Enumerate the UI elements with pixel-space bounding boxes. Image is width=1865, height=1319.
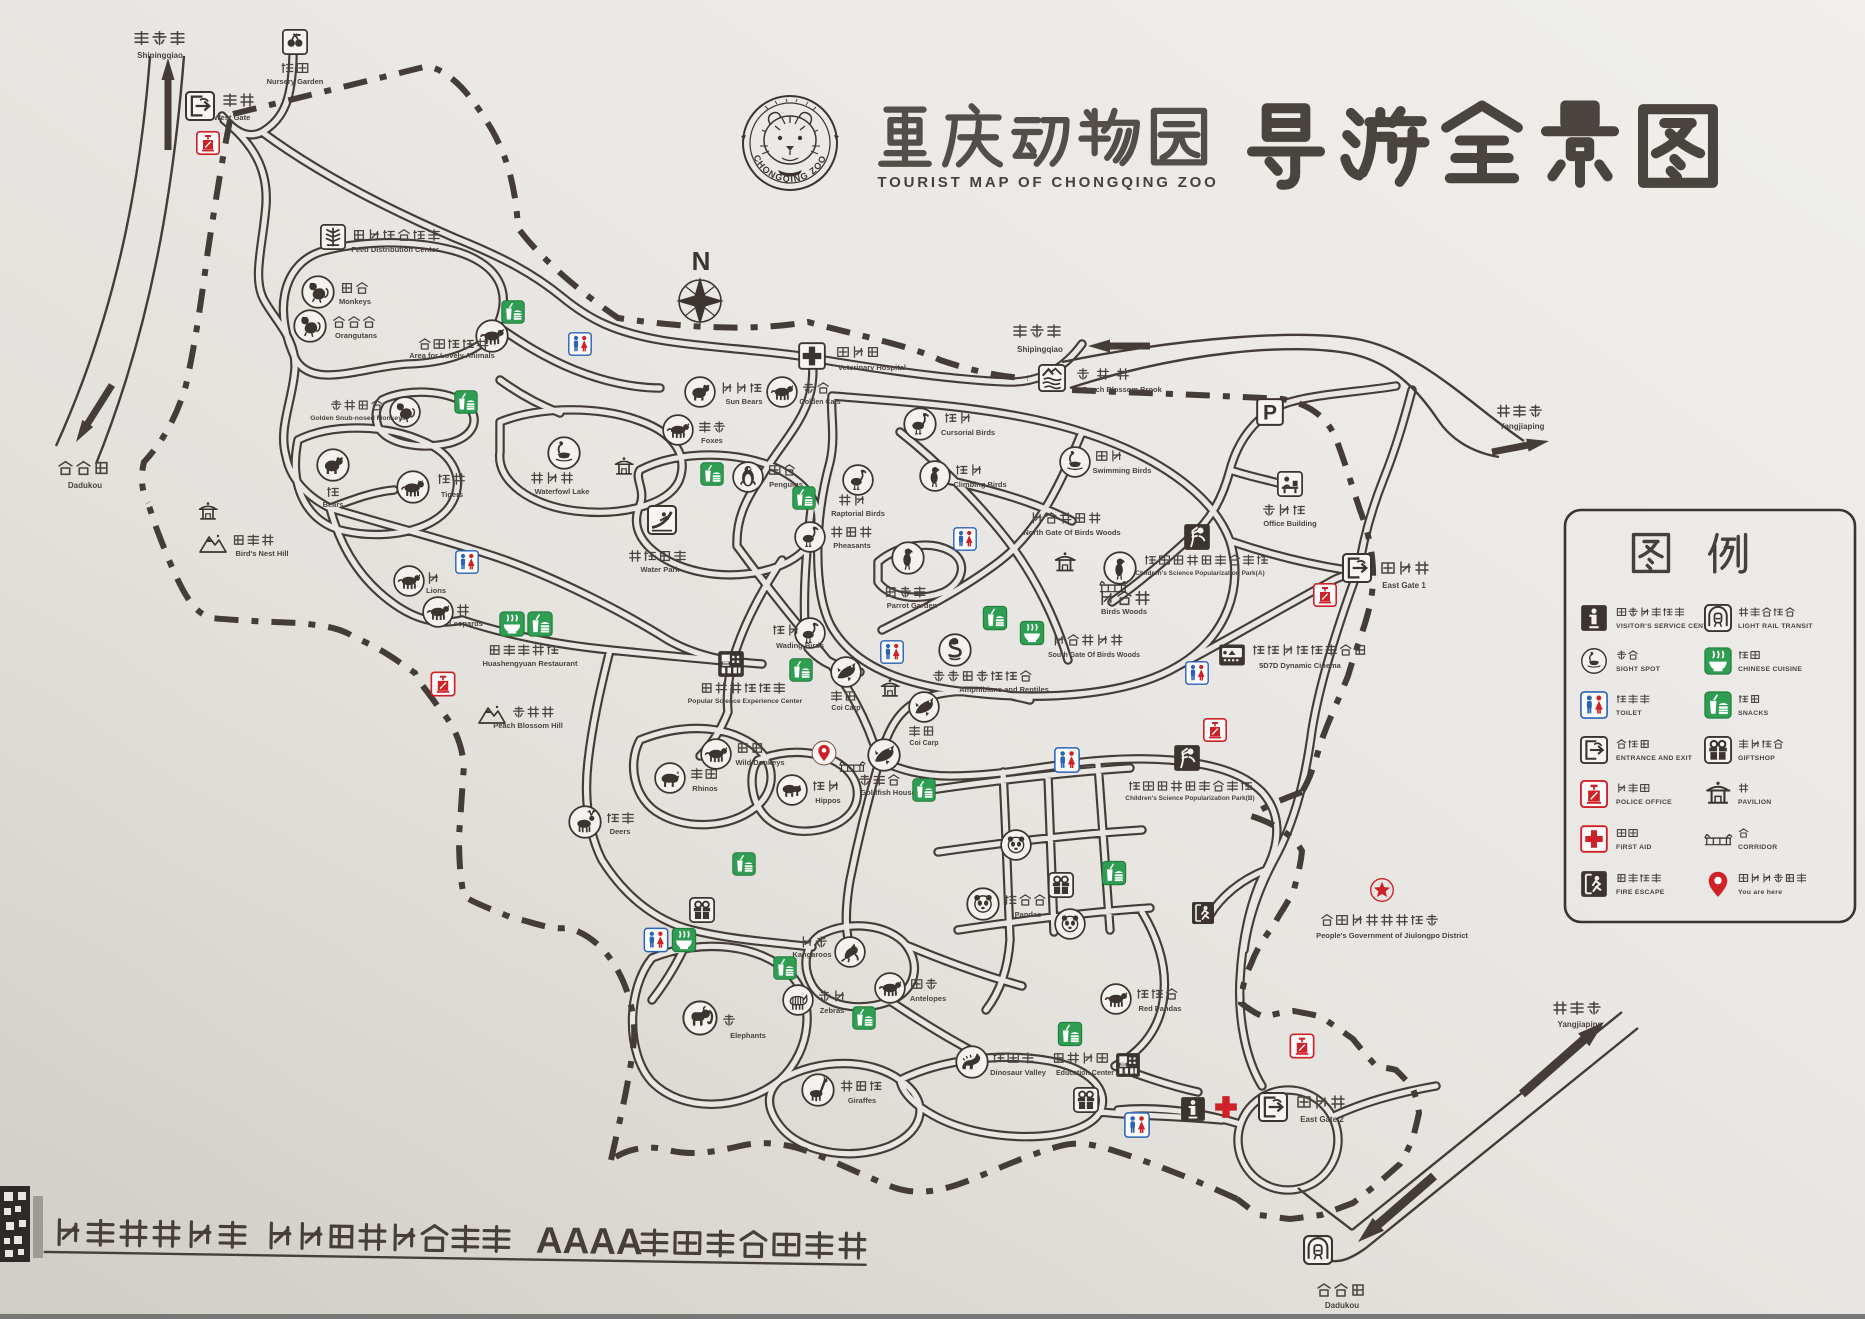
svg-text:N: N	[692, 246, 711, 276]
svg-text:Popular Science Experience Cen: Popular Science Experience Center	[688, 698, 803, 705]
svg-text:Dadukou: Dadukou	[68, 481, 102, 490]
svg-text:Lions: Lions	[426, 586, 446, 595]
svg-text:TOURIST MAP OF CHONGQING ZOO: TOURIST MAP OF CHONGQING ZOO	[877, 174, 1218, 191]
svg-text:Wading Birds: Wading Birds	[776, 641, 824, 650]
svg-text:Children's Science Popularizat: Children's Science Popularization Park(A…	[1135, 570, 1264, 577]
svg-text:PAVILION: PAVILION	[1738, 799, 1772, 806]
svg-text:Huashengyuan Restaurant: Huashengyuan Restaurant	[482, 659, 578, 668]
svg-text:Wild Donkeys: Wild Donkeys	[735, 758, 784, 767]
svg-text:Yangjiaping: Yangjiaping	[1500, 422, 1545, 431]
svg-text:Dinosaur Valley: Dinosaur Valley	[990, 1068, 1047, 1077]
svg-text:Coi Carp: Coi Carp	[831, 705, 860, 712]
svg-text:Goldfish House: Goldfish House	[860, 788, 915, 797]
svg-text:Foxes: Foxes	[701, 436, 723, 445]
svg-text:AAAA: AAAA	[536, 1220, 644, 1263]
svg-text:Giraffes: Giraffes	[848, 1096, 876, 1105]
svg-text:Cursorial Birds: Cursorial Birds	[941, 428, 995, 437]
svg-text:Waterfowl Lake: Waterfowl Lake	[535, 487, 590, 496]
svg-text:Shipingqiao: Shipingqiao	[1017, 345, 1063, 354]
svg-text:5D7D Dynamic Cinema: 5D7D Dynamic Cinema	[1259, 661, 1342, 670]
svg-text:Golden Cats: Golden Cats	[799, 399, 840, 406]
svg-text:Shipingqiao: Shipingqiao	[137, 51, 183, 60]
svg-text:SNACKS: SNACKS	[1738, 710, 1769, 717]
svg-text:Office Building: Office Building	[1263, 519, 1317, 528]
svg-text:Area for Lovely Animals: Area for Lovely Animals	[409, 351, 495, 360]
svg-text:Pandas: Pandas	[1015, 910, 1042, 919]
svg-text:Parrot Garden: Parrot Garden	[887, 601, 938, 610]
svg-text:North Gate Of Birds Woods: North Gate Of Birds Woods	[1023, 528, 1120, 537]
svg-text:Feed Distribution Center: Feed Distribution Center	[351, 245, 439, 254]
svg-text:Water Park: Water Park	[641, 565, 681, 574]
svg-text:Bears: Bears	[323, 500, 344, 509]
svg-text:Veterinary Hospital: Veterinary Hospital	[838, 363, 906, 372]
svg-text:West Gate: West Gate	[214, 113, 251, 122]
svg-text:LIGHT RAIL TRANSIT: LIGHT RAIL TRANSIT	[1738, 623, 1813, 630]
svg-text:Peach Blossom Brook: Peach Blossom Brook	[1082, 385, 1162, 394]
svg-text:Pheasants: Pheasants	[833, 541, 871, 550]
svg-text:CORRIDOR: CORRIDOR	[1738, 844, 1777, 851]
svg-text:Education Center: Education Center	[1056, 1070, 1114, 1077]
svg-text:SIGHT SPOT: SIGHT SPOT	[1616, 666, 1661, 673]
svg-text:Bird's Nest Hill: Bird's Nest Hill	[235, 549, 288, 558]
svg-text:Climbing Birds: Climbing Birds	[953, 480, 1006, 489]
svg-text:Amphibians and Reptiles: Amphibians and Reptiles	[959, 685, 1049, 694]
svg-text:Peach Blossom Hill: Peach Blossom Hill	[493, 721, 563, 730]
svg-text:Leopards: Leopards	[449, 619, 483, 628]
svg-text:FIRE ESCAPE: FIRE ESCAPE	[1616, 889, 1665, 896]
svg-text:CHINESE CUISINE: CHINESE CUISINE	[1738, 666, 1802, 673]
svg-text:East Gate 2: East Gate 2	[1300, 1115, 1344, 1124]
svg-text:Rhinos: Rhinos	[692, 784, 717, 793]
svg-text:Raptorial Birds: Raptorial Birds	[831, 509, 885, 518]
svg-text:ENTRANCE AND EXIT: ENTRANCE AND EXIT	[1616, 755, 1693, 762]
svg-text:Children's Science Popularizat: Children's Science Popularization Park(B…	[1125, 795, 1254, 802]
svg-text:Red Pandas: Red Pandas	[1139, 1004, 1182, 1013]
svg-text:You are here: You are here	[1738, 889, 1782, 896]
svg-text:Yangjiaping: Yangjiaping	[1558, 1020, 1603, 1029]
svg-text:Monkeys: Monkeys	[339, 297, 371, 306]
svg-text:Coi Carp: Coi Carp	[909, 740, 938, 747]
svg-text:East Gate 1: East Gate 1	[1382, 581, 1426, 590]
svg-text:Orangutans: Orangutans	[335, 331, 377, 340]
svg-text:Birds Woods: Birds Woods	[1101, 607, 1147, 616]
svg-text:Swimming Birds: Swimming Birds	[1093, 466, 1152, 475]
svg-text:FIRST AID: FIRST AID	[1616, 844, 1652, 851]
svg-text:GIFTSHOP: GIFTSHOP	[1738, 755, 1775, 762]
svg-text:Sun Bears: Sun Bears	[725, 397, 762, 406]
svg-text:Zebras: Zebras	[820, 1006, 845, 1015]
svg-text:Golden Snub-nosed Monkeys: Golden Snub-nosed Monkeys	[310, 415, 406, 422]
svg-text:Antelopes: Antelopes	[910, 994, 946, 1003]
svg-text:Dadukou: Dadukou	[1325, 1301, 1359, 1310]
svg-text:Deers: Deers	[610, 827, 631, 836]
svg-text:Elephants: Elephants	[730, 1031, 766, 1040]
svg-text:Tigers: Tigers	[441, 490, 463, 499]
svg-text:VISITOR'S SERVICE CENTER: VISITOR'S SERVICE CENTER	[1616, 623, 1718, 630]
svg-text:South Gate Of Birds Woods: South Gate Of Birds Woods	[1048, 652, 1140, 659]
svg-text:Nursery Garden: Nursery Garden	[267, 77, 324, 86]
svg-text:POLICE OFFICE: POLICE OFFICE	[1616, 799, 1672, 806]
svg-text:People's Government of Jiulong: People's Government of Jiulongpo Distric…	[1316, 931, 1468, 940]
svg-text:Kangaroos: Kangaroos	[792, 950, 831, 959]
svg-text:TOILET: TOILET	[1616, 710, 1642, 717]
svg-text:Hippos: Hippos	[815, 796, 840, 805]
